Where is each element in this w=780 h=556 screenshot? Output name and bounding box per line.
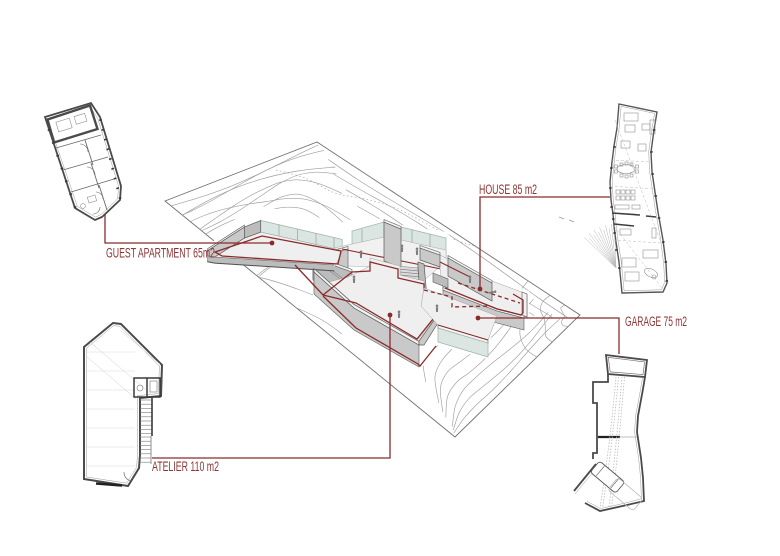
svg-text:GARAGE 75 m2: GARAGE 75 m2 (625, 314, 687, 329)
svg-text:HOUSE 85 m2: HOUSE 85 m2 (479, 182, 537, 197)
svg-text:GUEST APARTMENT 65m2: GUEST APARTMENT 65m2 (106, 246, 215, 261)
svg-text:ATELIER 110 m2: ATELIER 110 m2 (152, 459, 219, 474)
